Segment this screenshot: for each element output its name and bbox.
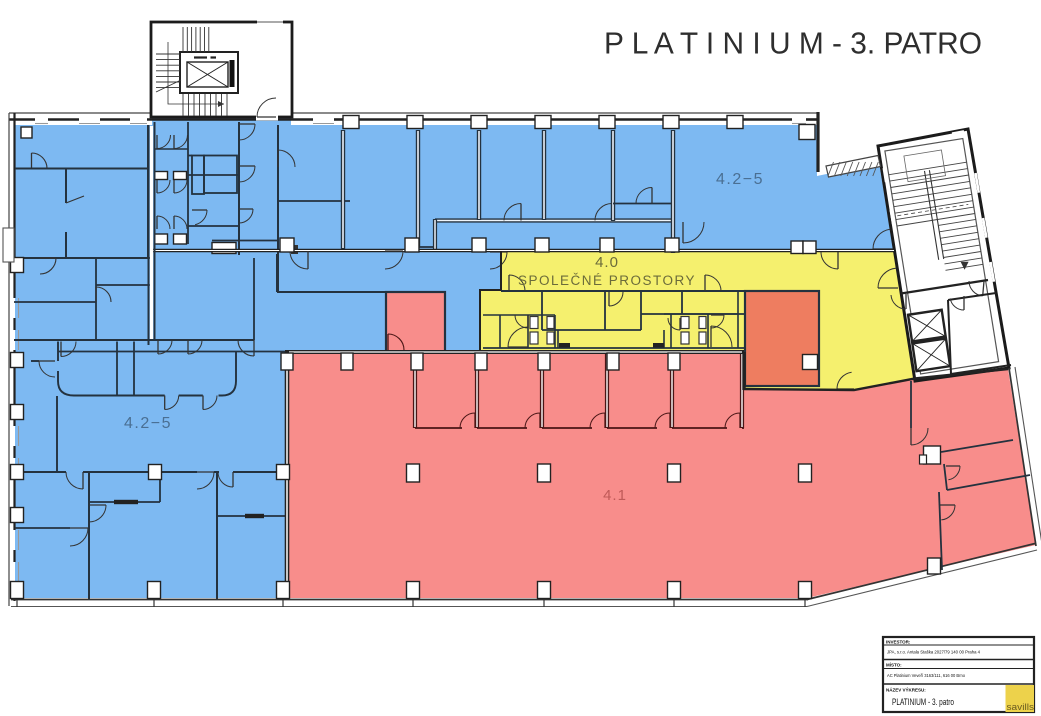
- svg-text:AC Platinium Veveří 3163/111,: AC Platinium Veveří 3163/111, 616 00 Brn…: [887, 673, 965, 678]
- svg-text:JPA, s.r.o. Antala Staška 2027: JPA, s.r.o. Antala Staška 2027/79 140 00…: [887, 650, 980, 655]
- svg-text:savills: savills: [1007, 702, 1035, 712]
- svg-text:MÍSTO:: MÍSTO:: [886, 661, 902, 668]
- svg-text:INVESTOR:: INVESTOR:: [886, 640, 911, 645]
- svg-text:NÁZEV VÝKRESU:: NÁZEV VÝKRESU:: [886, 687, 926, 693]
- svg-text:4.2−5: 4.2−5: [124, 415, 172, 432]
- svg-text:4.2−5: 4.2−5: [716, 171, 764, 188]
- svg-text:4.1: 4.1: [603, 487, 627, 504]
- svg-text:PLATINIUM - 3. patro: PLATINIUM - 3. patro: [892, 697, 954, 708]
- svg-text:P L A T I N I U M - 3. PATRO: P L A T I N I U M - 3. PATRO: [604, 26, 982, 61]
- svg-text:4.0: 4.0: [595, 254, 619, 271]
- svg-text:SPOLEČNÉ PROSTORY: SPOLEČNÉ PROSTORY: [518, 273, 696, 288]
